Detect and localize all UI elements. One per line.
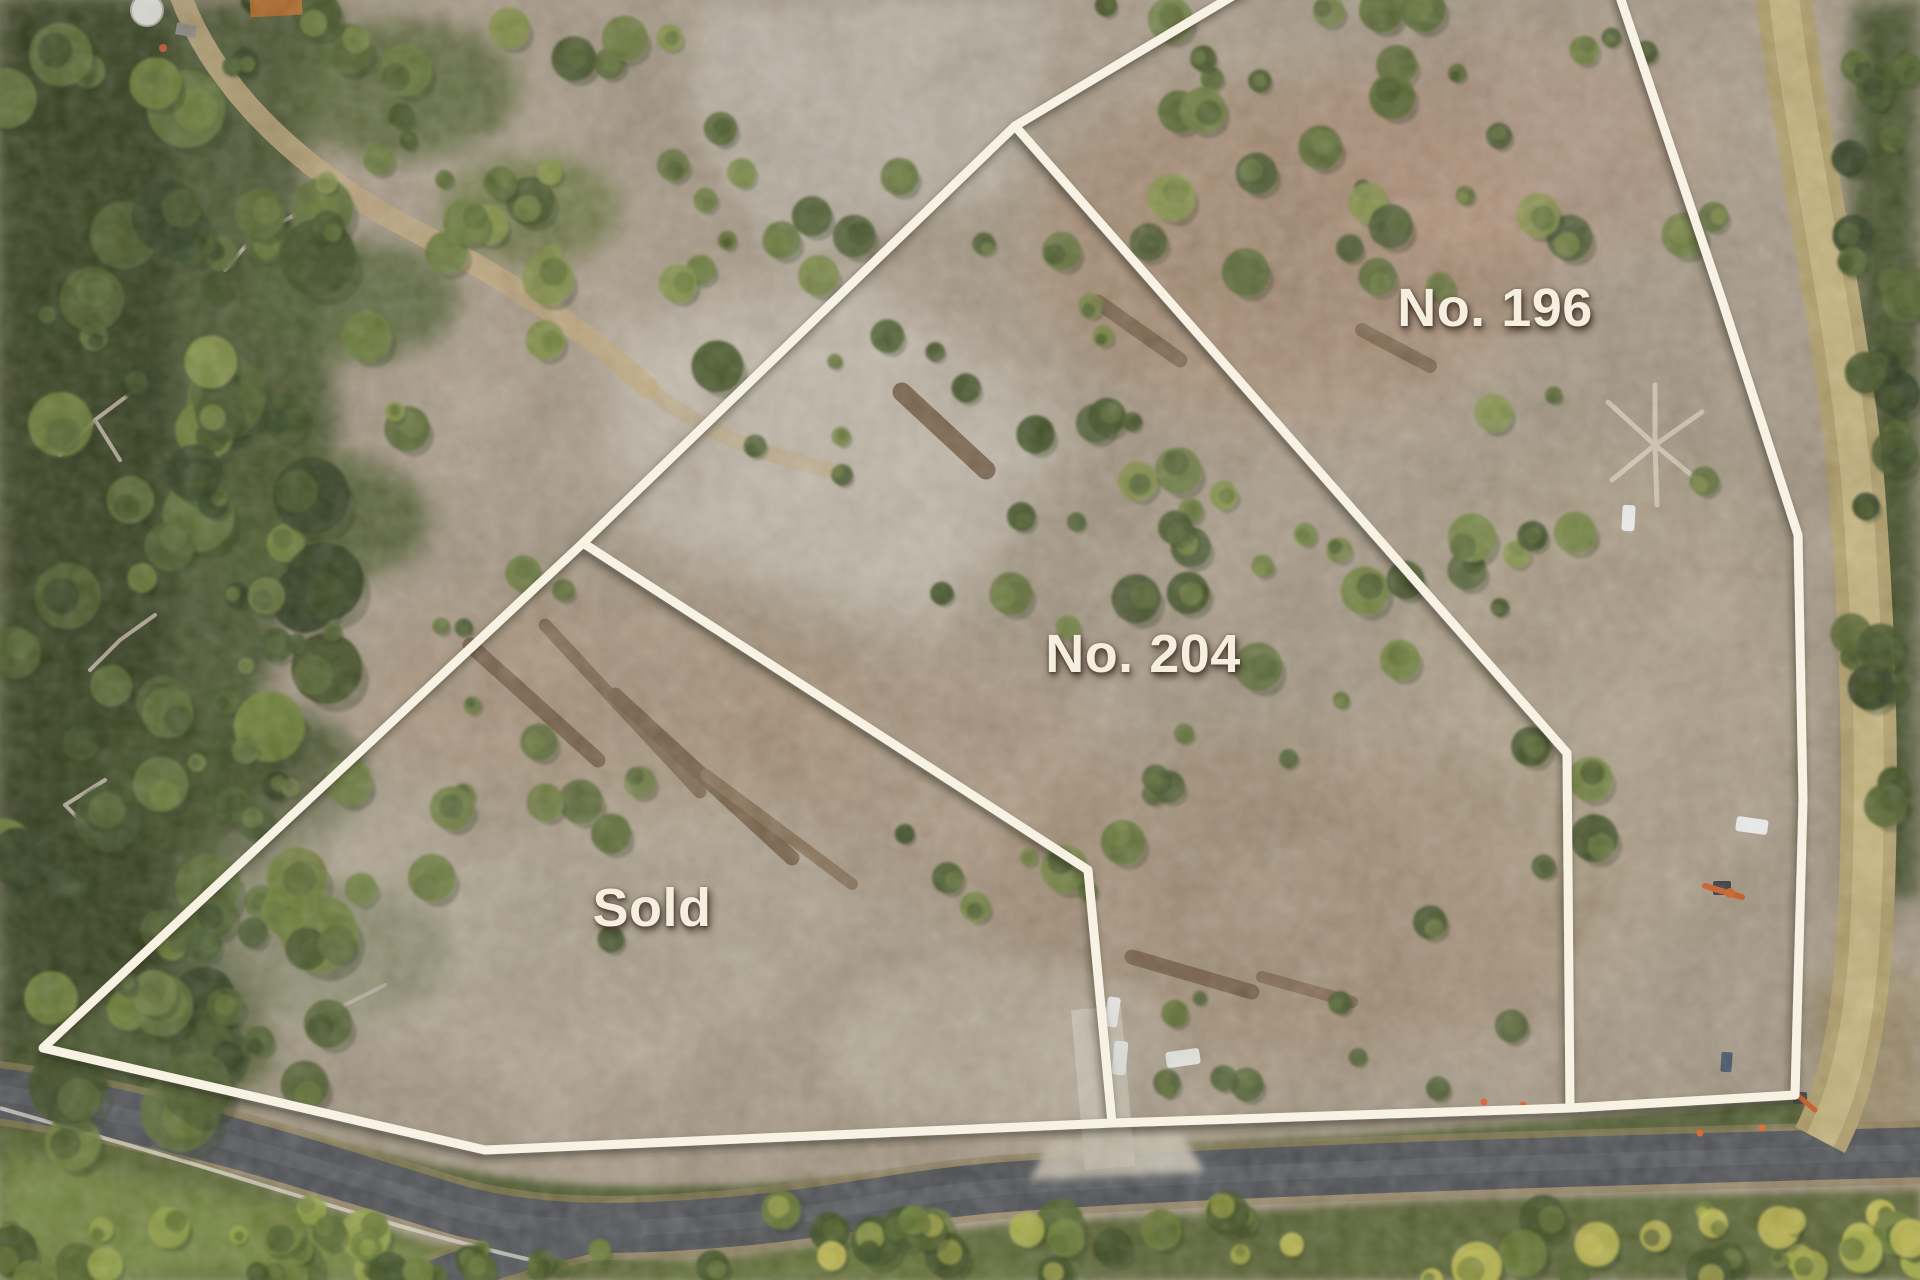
lot-label-sold: Sold — [593, 877, 712, 939]
aerial-photo-stage: No. 196 No. 204 Sold — [0, 0, 1920, 1280]
lot-label-204: No. 204 — [1045, 623, 1241, 685]
ground-grain — [0, 0, 1920, 1280]
aerial-photo — [0, 0, 1920, 1280]
lot-label-196: No. 196 — [1397, 277, 1593, 339]
